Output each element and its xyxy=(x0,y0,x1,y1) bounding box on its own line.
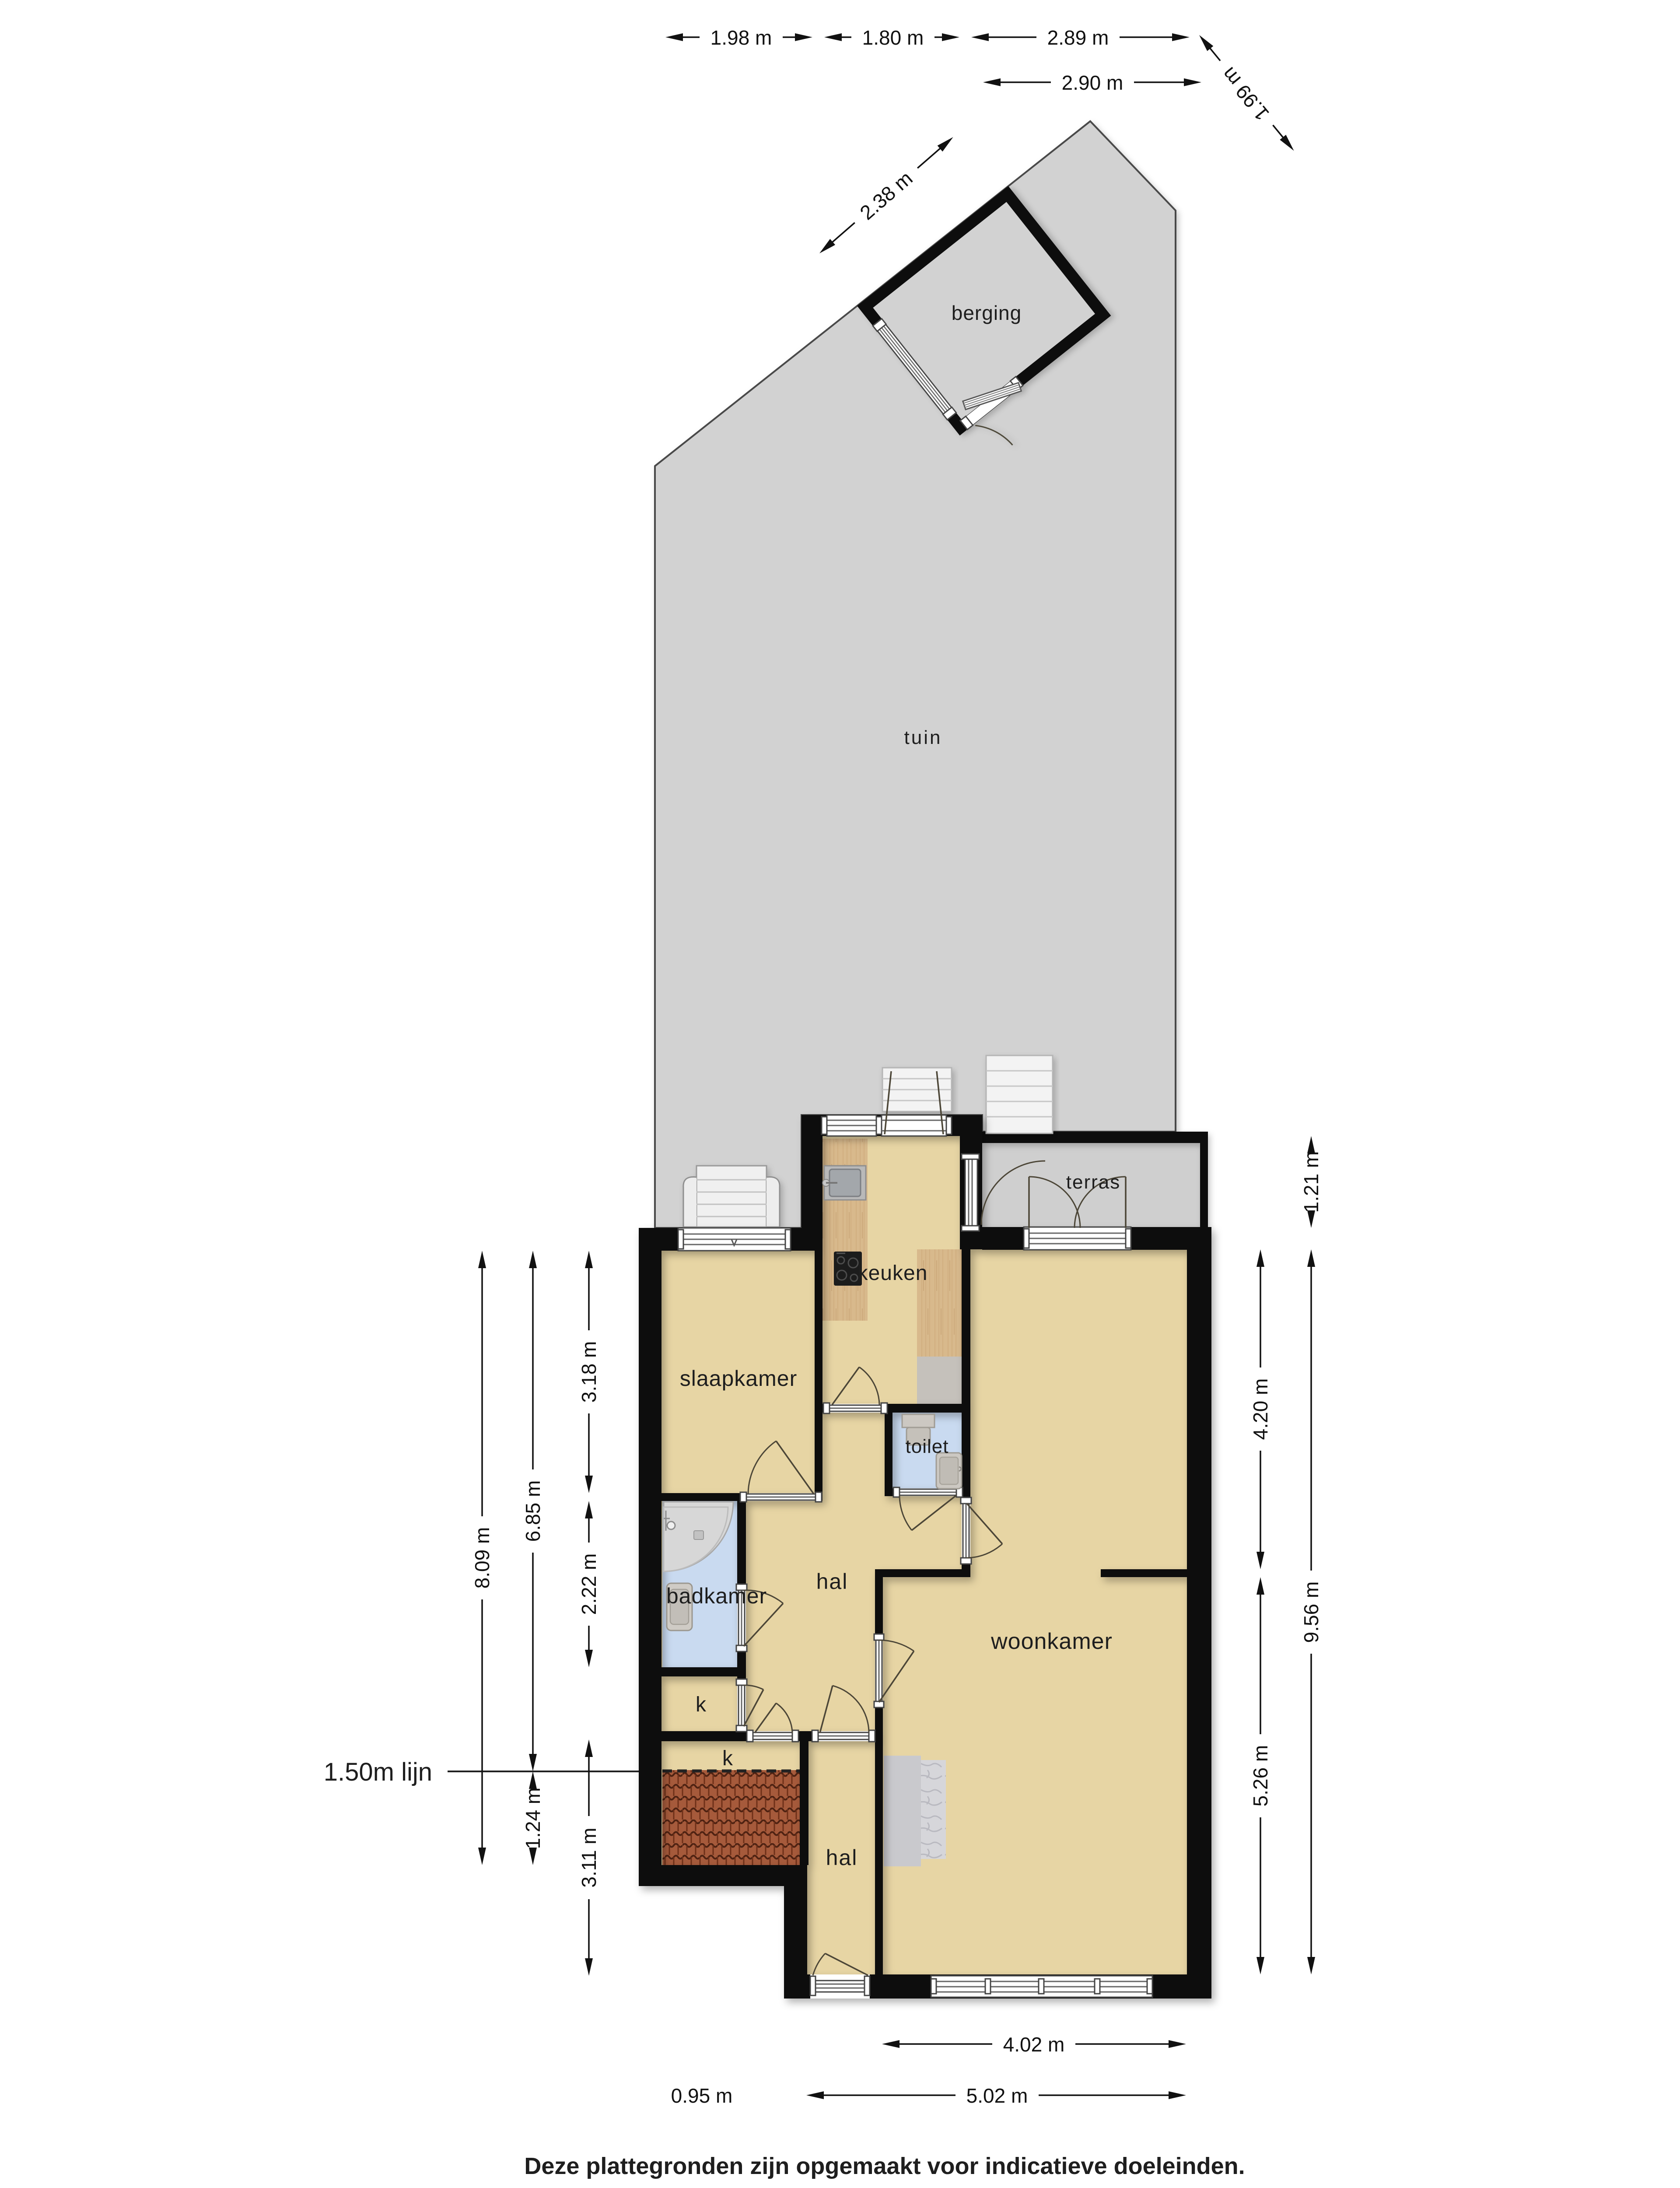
svg-text:k: k xyxy=(722,1747,733,1770)
svg-text:badkamer: badkamer xyxy=(666,1584,767,1608)
svg-text:5.02 m: 5.02 m xyxy=(966,2084,1028,2107)
svg-text:toilet: toilet xyxy=(906,1436,949,1457)
svg-text:4.20 m: 4.20 m xyxy=(1249,1378,1272,1440)
svg-text:8.09 m: 8.09 m xyxy=(471,1527,493,1589)
svg-text:1.98 m: 1.98 m xyxy=(710,26,772,49)
svg-text:2.22 m: 2.22 m xyxy=(577,1553,600,1615)
svg-text:tuin: tuin xyxy=(904,727,942,748)
svg-text:9.56 m: 9.56 m xyxy=(1300,1581,1323,1643)
svg-text:2.89 m: 2.89 m xyxy=(1047,26,1109,49)
svg-text:k: k xyxy=(696,1693,707,1716)
svg-text:slaapkamer: slaapkamer xyxy=(680,1366,797,1391)
svg-text:0.95 m: 0.95 m xyxy=(671,2084,733,2107)
svg-text:berging: berging xyxy=(952,302,1022,324)
svg-text:1.21 m: 1.21 m xyxy=(1300,1151,1323,1213)
svg-text:4.02 m: 4.02 m xyxy=(1003,2033,1065,2056)
svg-text:6.85 m: 6.85 m xyxy=(521,1480,544,1542)
svg-text:keuken: keuken xyxy=(857,1262,928,1285)
svg-text:hal: hal xyxy=(816,1569,848,1594)
svg-text:1.50m lijn: 1.50m lijn xyxy=(324,1758,432,1786)
svg-text:3.18 m: 3.18 m xyxy=(577,1341,600,1403)
svg-text:1.24 m: 1.24 m xyxy=(521,1788,544,1849)
svg-text:terras: terras xyxy=(1066,1171,1120,1193)
svg-text:5.26 m: 5.26 m xyxy=(1249,1745,1272,1807)
svg-text:Deze plattegronden zijn opgema: Deze plattegronden zijn opgemaakt voor i… xyxy=(524,2153,1245,2179)
svg-text:hal: hal xyxy=(826,1845,858,1870)
svg-text:2.90 m: 2.90 m xyxy=(1062,71,1123,94)
svg-text:3.11 m: 3.11 m xyxy=(577,1827,600,1887)
svg-text:woonkamer: woonkamer xyxy=(990,1629,1113,1654)
svg-text:1.80 m: 1.80 m xyxy=(862,26,924,49)
